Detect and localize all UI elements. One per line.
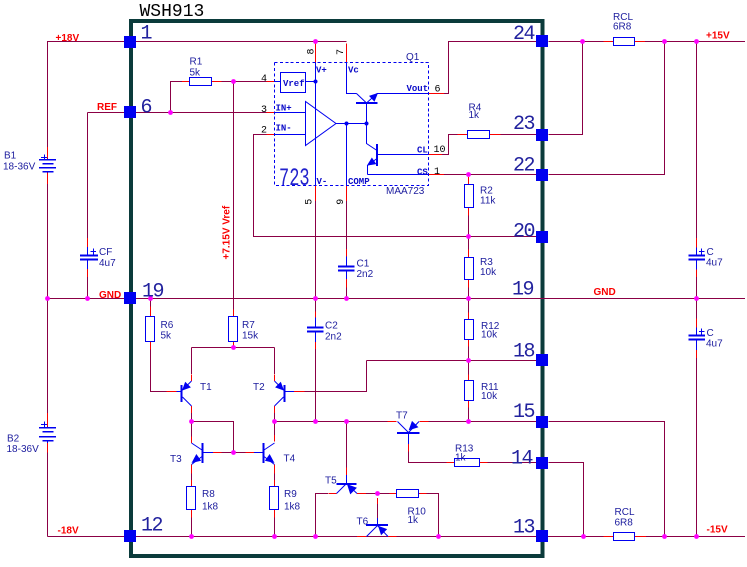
svg-text:1: 1 [434, 167, 440, 178]
svg-text:R8: R8 [202, 489, 215, 500]
svg-text:1: 1 [141, 23, 153, 46]
svg-text:22: 22 [513, 155, 535, 178]
svg-text:4u7: 4u7 [706, 258, 723, 269]
svg-text:B2: B2 [7, 433, 20, 444]
svg-text:8: 8 [307, 48, 318, 54]
svg-text:4u7: 4u7 [706, 339, 723, 350]
svg-text:C1: C1 [357, 259, 370, 270]
svg-text:-15V: -15V [707, 525, 728, 536]
svg-text:10: 10 [434, 145, 446, 156]
svg-text:7: 7 [336, 49, 347, 55]
svg-text:R6: R6 [161, 320, 174, 331]
svg-text:GND: GND [594, 287, 616, 298]
svg-text:1k: 1k [408, 515, 420, 526]
svg-text:18: 18 [513, 341, 535, 364]
svg-text:GND: GND [99, 290, 121, 301]
svg-text:5k: 5k [161, 331, 173, 342]
svg-text:R7: R7 [242, 320, 255, 331]
svg-text:IN+: IN+ [276, 104, 292, 114]
svg-text:6R8: 6R8 [613, 22, 632, 33]
svg-text:WSH913: WSH913 [140, 2, 205, 22]
svg-text:3: 3 [261, 105, 267, 116]
svg-text:Vc: Vc [348, 66, 359, 76]
svg-text:+7.15V Vref: +7.15V Vref [222, 205, 233, 259]
svg-text:IN-: IN- [276, 124, 292, 134]
svg-text:+15V: +15V [706, 31, 730, 42]
svg-text:T6: T6 [357, 517, 369, 528]
svg-text:T7: T7 [396, 411, 408, 422]
svg-text:20: 20 [513, 220, 535, 243]
svg-text:C: C [707, 328, 714, 339]
svg-text:+18V: +18V [56, 33, 80, 44]
svg-text:6R8: 6R8 [615, 517, 634, 528]
svg-text:REF: REF [97, 102, 117, 113]
svg-text:Vout: Vout [407, 84, 429, 94]
svg-text:4u7: 4u7 [99, 258, 116, 269]
svg-text:13: 13 [513, 517, 535, 540]
svg-text:1k: 1k [455, 453, 467, 464]
svg-text:4: 4 [261, 74, 267, 85]
svg-text:1k8: 1k8 [202, 502, 219, 513]
svg-text:12: 12 [141, 515, 163, 538]
svg-text:T3: T3 [170, 454, 182, 465]
svg-text:CS: CS [417, 168, 428, 178]
svg-text:C2: C2 [325, 321, 338, 332]
svg-text:CL: CL [417, 146, 428, 156]
svg-text:T4: T4 [284, 454, 296, 465]
svg-text:V+: V+ [316, 66, 327, 76]
svg-text:6: 6 [141, 96, 152, 119]
svg-text:6: 6 [435, 85, 441, 96]
svg-text:R1: R1 [190, 57, 203, 68]
svg-text:10k: 10k [481, 391, 498, 402]
svg-text:18-36V: 18-36V [3, 162, 36, 173]
svg-text:CF: CF [99, 247, 112, 258]
svg-text:19: 19 [142, 280, 164, 303]
svg-text:2: 2 [261, 126, 267, 137]
svg-text:9: 9 [336, 199, 347, 205]
svg-text:15: 15 [513, 401, 535, 424]
svg-text:1k8: 1k8 [284, 502, 301, 513]
svg-text:C: C [707, 247, 714, 258]
svg-text:V-: V- [317, 177, 328, 187]
svg-text:5: 5 [305, 199, 316, 205]
svg-text:11k: 11k [480, 196, 496, 207]
svg-text:R9: R9 [284, 489, 297, 500]
svg-text:RCL: RCL [615, 507, 635, 518]
svg-text:T1: T1 [200, 382, 212, 393]
svg-text:723: 723 [279, 165, 310, 193]
svg-text:2n2: 2n2 [357, 269, 374, 280]
svg-text:T5: T5 [325, 476, 337, 487]
svg-text:Vref: Vref [283, 79, 305, 89]
svg-text:1k: 1k [469, 110, 481, 121]
svg-text:24: 24 [513, 23, 535, 46]
svg-text:15k: 15k [242, 331, 259, 342]
svg-text:2n2: 2n2 [325, 332, 342, 343]
svg-text:5k: 5k [190, 68, 202, 79]
svg-text:23: 23 [513, 113, 535, 136]
svg-text:10k: 10k [480, 267, 497, 278]
svg-text:B1: B1 [4, 151, 17, 162]
svg-text:T2: T2 [253, 382, 265, 393]
svg-text:Q1: Q1 [406, 52, 420, 63]
svg-text:COMP: COMP [348, 177, 370, 187]
svg-text:MAA723: MAA723 [386, 186, 425, 197]
svg-text:18-36V: 18-36V [7, 444, 40, 455]
svg-text:10k: 10k [481, 330, 498, 341]
svg-text:-18V: -18V [58, 526, 79, 537]
svg-text:19: 19 [512, 278, 534, 301]
svg-text:14: 14 [511, 448, 533, 471]
